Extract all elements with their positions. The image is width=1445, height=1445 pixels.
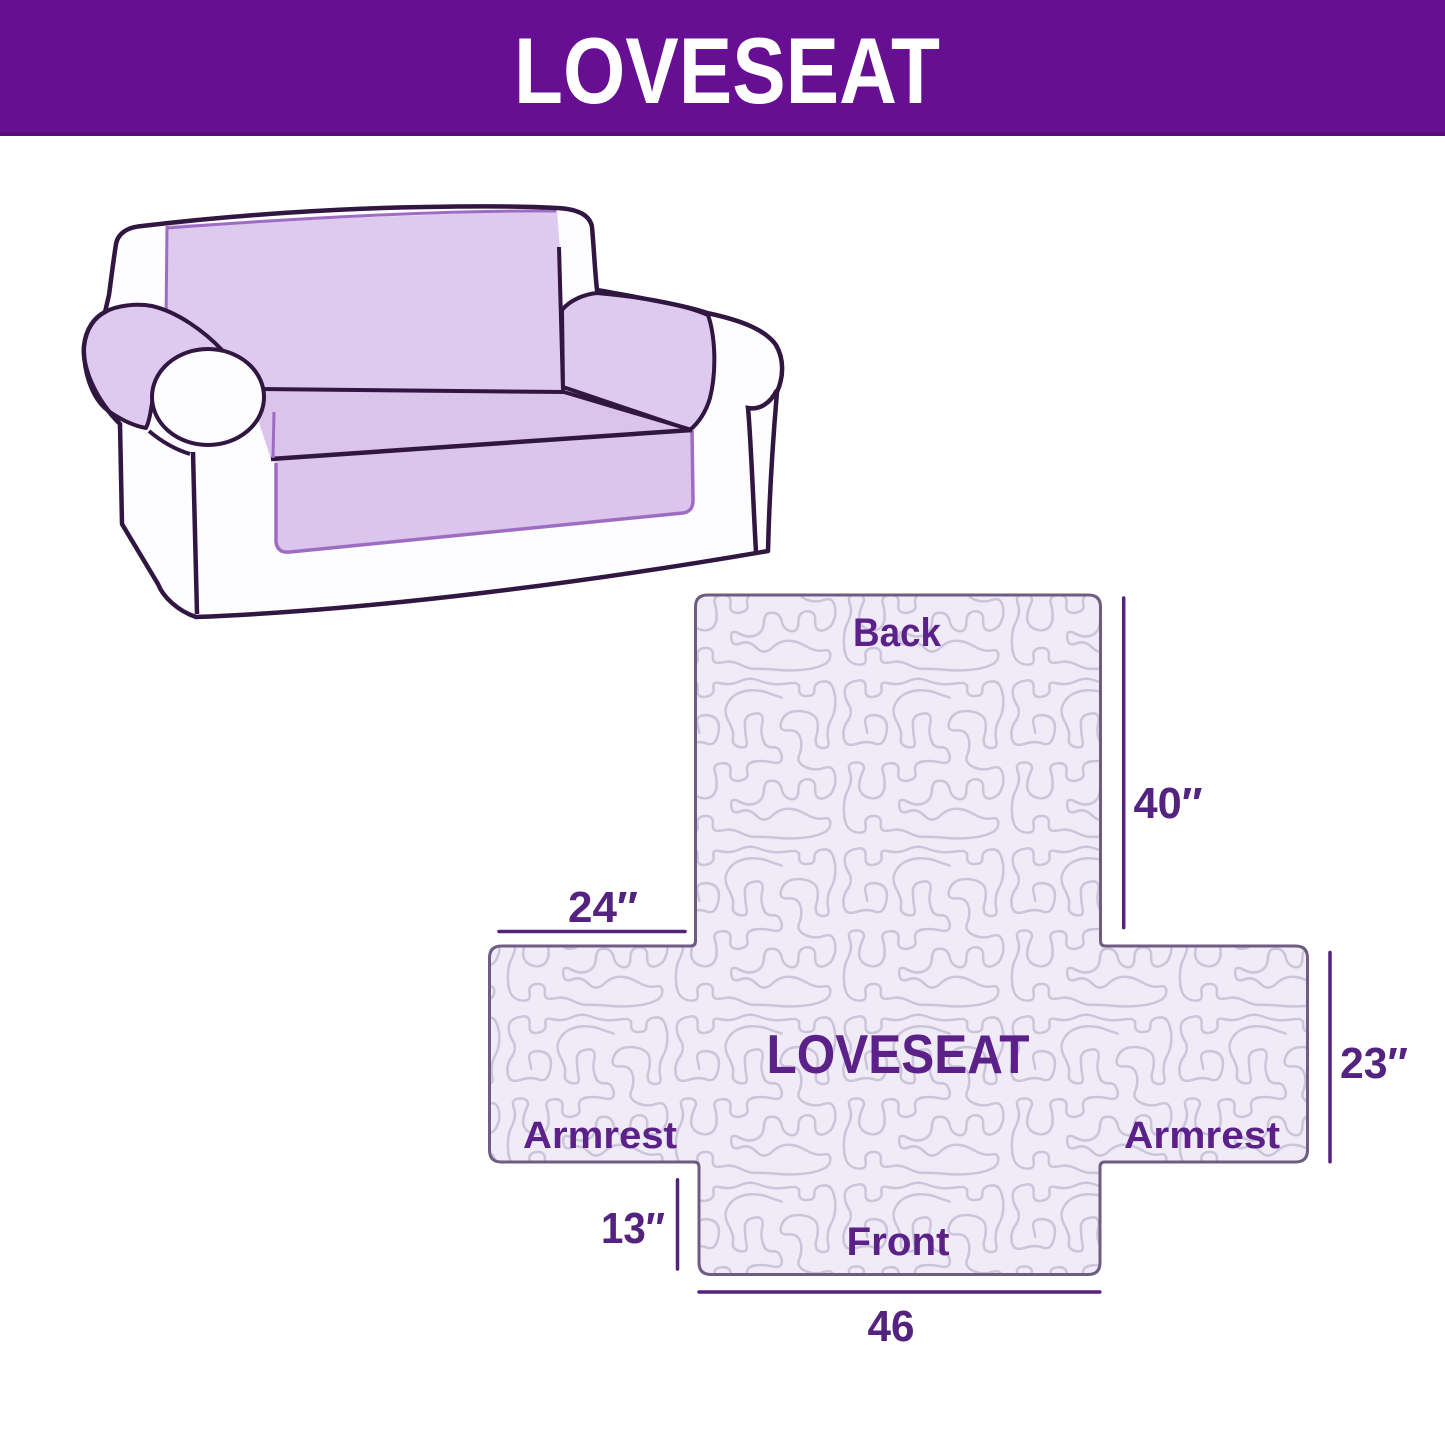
- svg-text:LOVESEAT: LOVESEAT: [767, 1023, 1030, 1085]
- svg-text:Front: Front: [847, 1220, 950, 1264]
- svg-text:LOVESEAT: LOVESEAT: [514, 18, 940, 123]
- svg-text:40″: 40″: [1134, 779, 1203, 828]
- svg-text:13″: 13″: [601, 1204, 665, 1253]
- svg-text:24″: 24″: [568, 883, 638, 932]
- svg-text:46: 46: [868, 1302, 915, 1351]
- svg-text:Armrest: Armrest: [1124, 1115, 1280, 1157]
- svg-text:Armrest: Armrest: [523, 1115, 677, 1157]
- svg-text:23″: 23″: [1340, 1039, 1408, 1088]
- svg-text:Back: Back: [853, 611, 942, 655]
